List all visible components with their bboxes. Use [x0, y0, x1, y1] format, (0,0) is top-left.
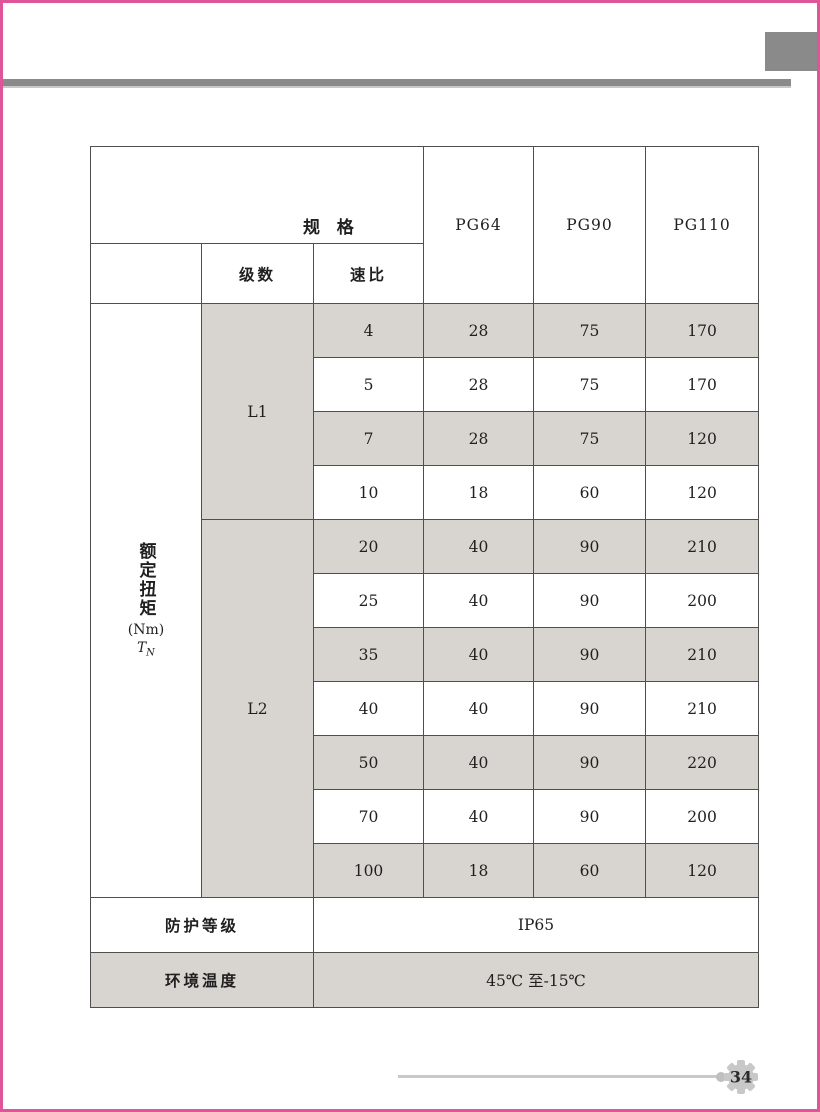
- column-header-pg90: PG90: [534, 147, 646, 304]
- table-cell: 90: [534, 520, 646, 574]
- table-cell: 75: [534, 412, 646, 466]
- page-number: 34: [730, 1068, 752, 1087]
- table-cell: 120: [646, 466, 759, 520]
- table-cell: 28: [424, 304, 534, 358]
- torque-unit-label: (Nm): [128, 622, 164, 638]
- table-cell: 10: [314, 466, 424, 520]
- table-cell: 90: [534, 790, 646, 844]
- table-cell: 90: [534, 574, 646, 628]
- table-cell: 170: [646, 358, 759, 412]
- spec-table: 规 格 技术参数 PG64 PG90 PG110 级数 速比 额定扭矩 (Nm)…: [90, 146, 759, 1008]
- temperature-value: 45℃ 至-15℃: [314, 953, 759, 1008]
- header-row-1: 规 格 技术参数 PG64 PG90 PG110: [91, 147, 759, 244]
- corner-accent-square: [765, 32, 818, 71]
- table-cell: 200: [646, 574, 759, 628]
- table-cell: 210: [646, 520, 759, 574]
- table-cell: 90: [534, 682, 646, 736]
- table-cell: 18: [424, 466, 534, 520]
- table-cell: 40: [424, 628, 534, 682]
- table-cell: 120: [646, 844, 759, 898]
- table-cell: 20: [314, 520, 424, 574]
- table-cell: 90: [534, 628, 646, 682]
- spec-corner-label: 规 格: [303, 213, 360, 238]
- temperature-row: 环境温度 45℃ 至-15℃: [91, 953, 759, 1008]
- table-cell: 40: [424, 520, 534, 574]
- top-divider-bar: [3, 79, 791, 88]
- table-cell: 210: [646, 682, 759, 736]
- table-cell: 75: [534, 358, 646, 412]
- column-header-ratio: 速比: [314, 244, 424, 304]
- table-cell: 5: [314, 358, 424, 412]
- table-cell: 40: [424, 574, 534, 628]
- stage-group-l2-cell: L2: [202, 520, 314, 898]
- table-cell: 120: [646, 412, 759, 466]
- torque-group-label-cell: 额定扭矩 (Nm) TN: [91, 304, 202, 898]
- torque-symbol: TN: [137, 640, 155, 659]
- empty-header-cell: [91, 244, 202, 304]
- catalog-page: 规 格 技术参数 PG64 PG90 PG110 级数 速比 额定扭矩 (Nm)…: [0, 0, 820, 1112]
- column-header-pg110: PG110: [646, 147, 759, 304]
- table-cell: 200: [646, 790, 759, 844]
- table-cell: 4: [314, 304, 424, 358]
- table-cell: 28: [424, 412, 534, 466]
- table-cell: 90: [534, 736, 646, 790]
- footer-rule-line: [398, 1075, 720, 1078]
- table-cell: 28: [424, 358, 534, 412]
- table-cell: 7: [314, 412, 424, 466]
- gear-icon: 34: [722, 1058, 760, 1096]
- table-row: 额定扭矩 (Nm) TN L1 4 28 75 170: [91, 304, 759, 358]
- torque-label-vertical: 额定扭矩: [134, 542, 159, 618]
- table-cell: 210: [646, 628, 759, 682]
- table-cell: 40: [424, 682, 534, 736]
- table-cell: 75: [534, 304, 646, 358]
- table-cell: 60: [534, 844, 646, 898]
- table-cell: 25: [314, 574, 424, 628]
- table-cell: 35: [314, 628, 424, 682]
- table-cell: 40: [424, 790, 534, 844]
- table-cell: 18: [424, 844, 534, 898]
- protection-row: 防护等级 IP65: [91, 898, 759, 953]
- diagonal-header-cell: 规 格 技术参数: [91, 147, 424, 244]
- protection-value: IP65: [314, 898, 759, 953]
- table-cell: 170: [646, 304, 759, 358]
- protection-label: 防护等级: [91, 898, 314, 953]
- column-header-pg64: PG64: [424, 147, 534, 304]
- stage-group-l1-cell: L1: [202, 304, 314, 520]
- table-cell: 60: [534, 466, 646, 520]
- table-cell: 70: [314, 790, 424, 844]
- table-cell: 40: [314, 682, 424, 736]
- table-cell: 100: [314, 844, 424, 898]
- table-cell: 220: [646, 736, 759, 790]
- column-header-stages: 级数: [202, 244, 314, 304]
- table-cell: 40: [424, 736, 534, 790]
- temperature-label: 环境温度: [91, 953, 314, 1008]
- table-cell: 50: [314, 736, 424, 790]
